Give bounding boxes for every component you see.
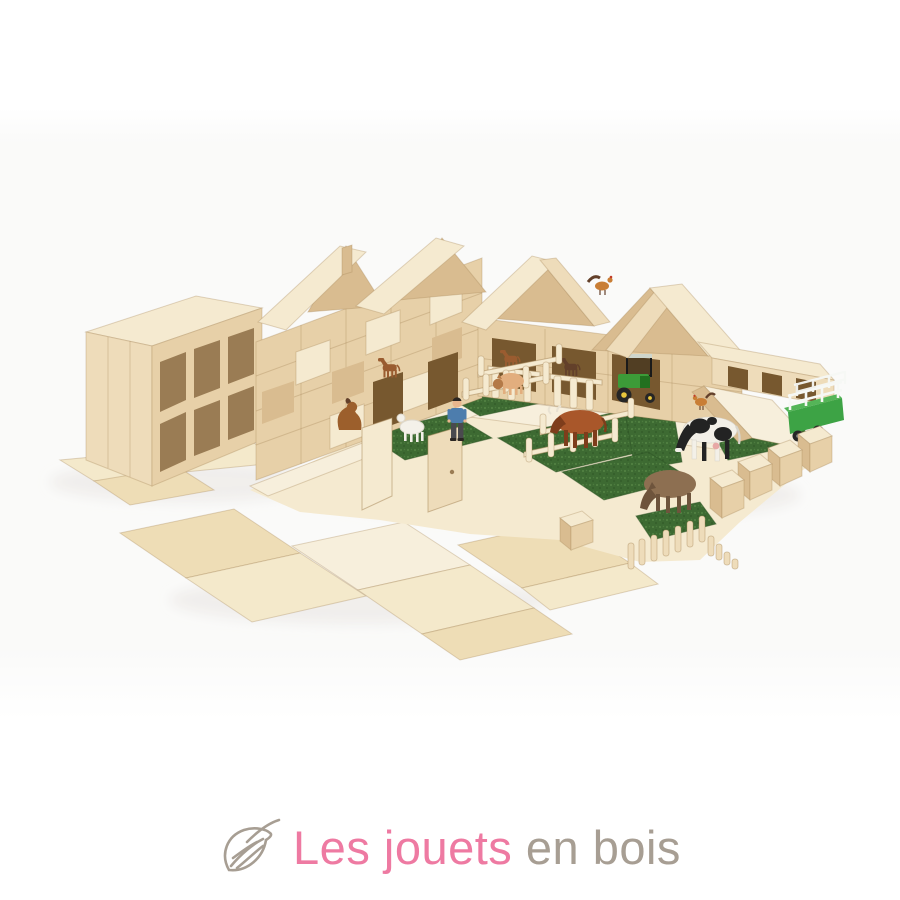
wall-cube bbox=[560, 511, 593, 550]
door-knob bbox=[450, 470, 454, 474]
logo-text-primary: Les jouets bbox=[293, 821, 512, 874]
leaf-icon bbox=[219, 814, 283, 880]
wall-cube bbox=[768, 440, 802, 486]
product-photo: Les jouets en bois bbox=[0, 0, 900, 900]
peg-stairs bbox=[708, 536, 738, 569]
rooster-on-roof bbox=[588, 276, 613, 295]
logo-text-secondary: en bois bbox=[512, 821, 681, 874]
toy-scene-illustration bbox=[0, 0, 900, 780]
logo-text: Les jouets en bois bbox=[293, 820, 681, 875]
brand-logo: Les jouets en bois bbox=[0, 802, 900, 892]
wall-cube bbox=[710, 470, 744, 518]
wall-cube bbox=[798, 426, 832, 472]
brown-sheep bbox=[640, 470, 696, 513]
